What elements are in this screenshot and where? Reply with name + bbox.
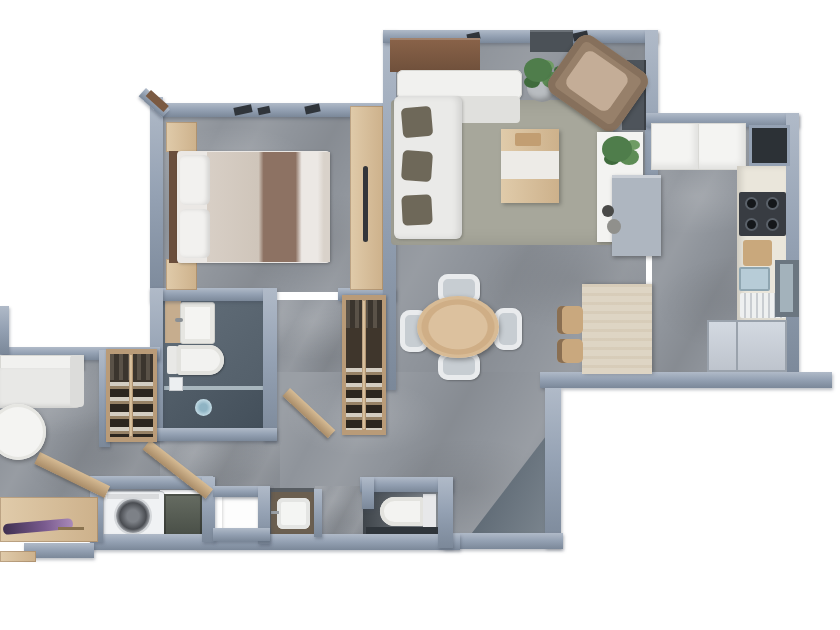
floor-plan-image [0, 0, 840, 630]
fridge [707, 320, 787, 372]
bedroom-left-wall [150, 97, 163, 303]
burner-4 [766, 218, 779, 231]
guest-toilet-bowl [380, 497, 424, 526]
upper-cabinet-1 [651, 123, 699, 170]
kitchen-dark-niche [749, 125, 790, 166]
toilet-paper-box [169, 377, 183, 391]
guest-toilet-tank [423, 494, 436, 528]
stool-1 [557, 306, 583, 334]
sofa-cushion-2 [401, 150, 433, 182]
shaft-opening [222, 497, 258, 529]
utility-sink [277, 498, 310, 529]
bathroom-sink [180, 302, 215, 344]
tv-on-dresser [363, 166, 368, 242]
divider-shelf-plant [602, 136, 632, 162]
coffee-table-tray [515, 133, 541, 146]
bathroom-right-wall [263, 288, 277, 441]
guest-toilet-right-wall [438, 477, 453, 548]
kitchen-sink [739, 267, 770, 291]
bed-duvet [207, 152, 330, 262]
entry-bottom-wall [443, 533, 563, 549]
plant-foliage [524, 58, 552, 82]
sofa-cushion-3 [401, 194, 433, 226]
utility-faucet [271, 511, 279, 514]
south-wall [540, 372, 832, 388]
flower-stem [58, 527, 84, 530]
burner-3 [745, 218, 758, 231]
window-sill-wood [0, 551, 36, 562]
lounge-wardrobe-divider [129, 354, 133, 437]
bathroom-faucet [175, 318, 183, 322]
console-table [390, 38, 480, 72]
island-counter [582, 284, 652, 374]
hall-wardrobe-divider [362, 300, 366, 430]
washer-door [116, 499, 150, 533]
fridge-door-split [736, 321, 738, 371]
divider-gray-cabinet [612, 175, 661, 256]
stool-2 [557, 339, 583, 363]
sofa-cushion-1 [401, 106, 434, 139]
nightstand-top [166, 122, 197, 152]
strip-bottom-wall [90, 534, 460, 550]
passage-floor [315, 486, 365, 536]
nightstand-bottom [166, 259, 197, 290]
vanity-counter [165, 301, 181, 343]
coffee-table-runner [501, 151, 559, 179]
burner-2 [766, 197, 779, 210]
entry-right-wall [545, 388, 561, 548]
sofa-back-top [397, 70, 522, 99]
lounge-sofa-seat [0, 368, 80, 408]
burner-1 [745, 197, 758, 210]
toilet-bowl [177, 345, 224, 375]
lounge-sofa-armrest [70, 355, 84, 407]
sink-room-right-wall [314, 489, 322, 537]
glass-cabinet-panel [780, 264, 793, 312]
decor-vase-1 [602, 205, 614, 217]
water-heater [164, 494, 202, 537]
cutting-board [743, 240, 772, 266]
dining-table [417, 296, 499, 358]
shower-drain [195, 399, 212, 416]
upper-cabinet-2 [698, 123, 746, 170]
decor-vase-2 [607, 219, 621, 234]
bed-pillow-2 [180, 209, 210, 258]
left-edge-stub-wall [0, 306, 9, 354]
wall-ac-unit [530, 30, 573, 52]
guest-toilet-left-stub [362, 477, 374, 509]
armchair-seat [563, 48, 631, 114]
bathroom-bottom-wall [150, 428, 277, 441]
shaft-bottom-wall [213, 528, 270, 541]
bed-pillow-1 [180, 155, 210, 205]
shower-floor [163, 390, 263, 430]
